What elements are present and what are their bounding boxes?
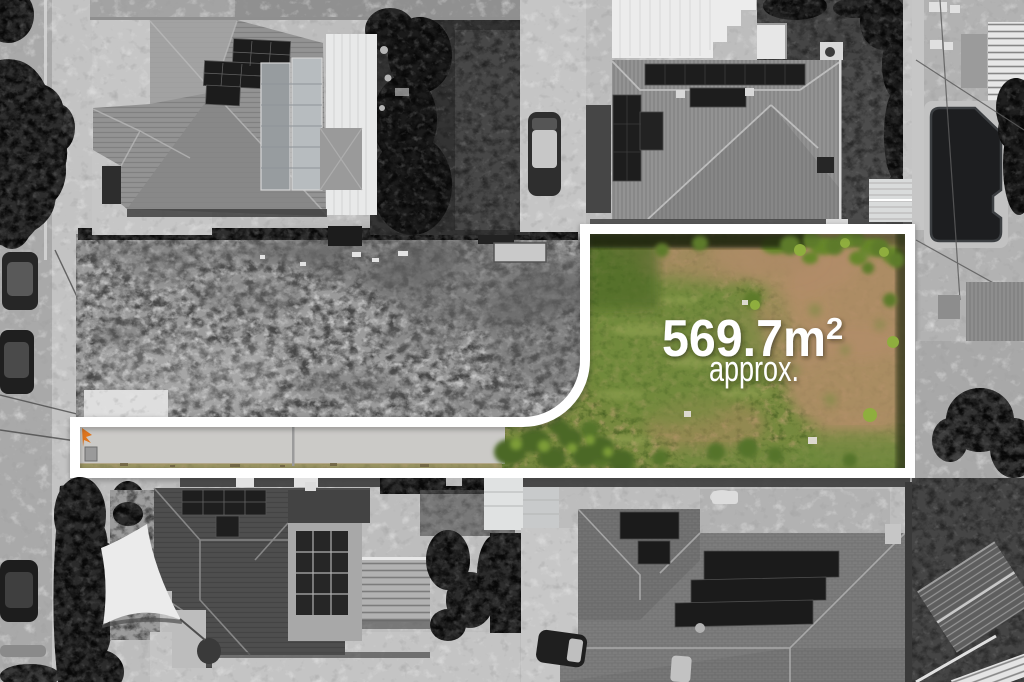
svg-text:2: 2 [826, 311, 843, 346]
svg-text:approx.: approx. [709, 348, 799, 389]
